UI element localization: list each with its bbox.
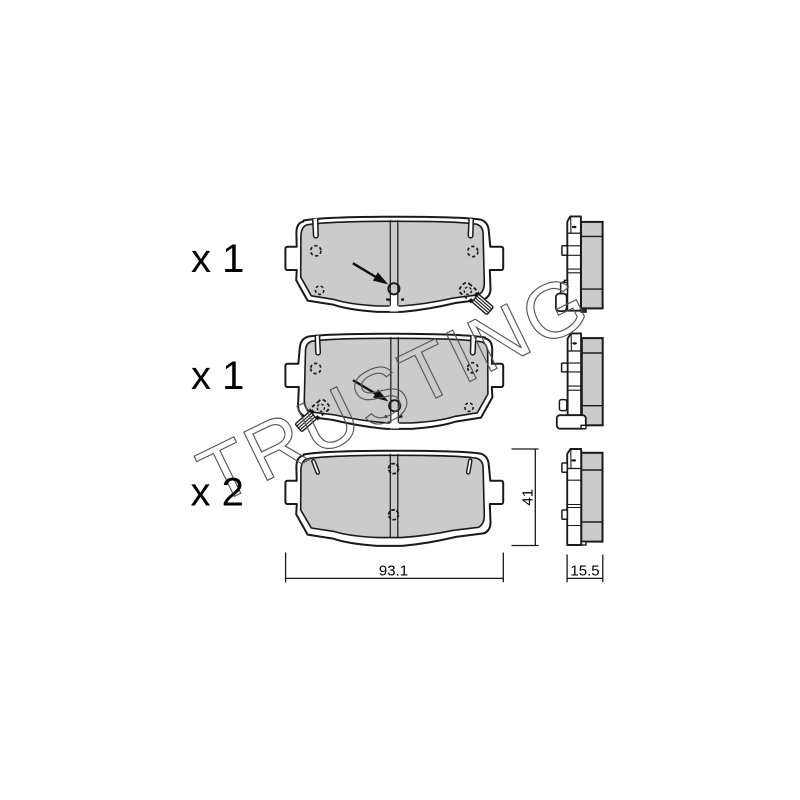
svg-text:x 1: x 1 [191, 354, 244, 398]
svg-text:41: 41 [520, 489, 537, 506]
svg-text:15.5: 15.5 [570, 563, 599, 580]
svg-text:x 1: x 1 [191, 237, 244, 281]
svg-text:93.1: 93.1 [379, 563, 408, 580]
svg-text:x 2: x 2 [191, 471, 244, 515]
